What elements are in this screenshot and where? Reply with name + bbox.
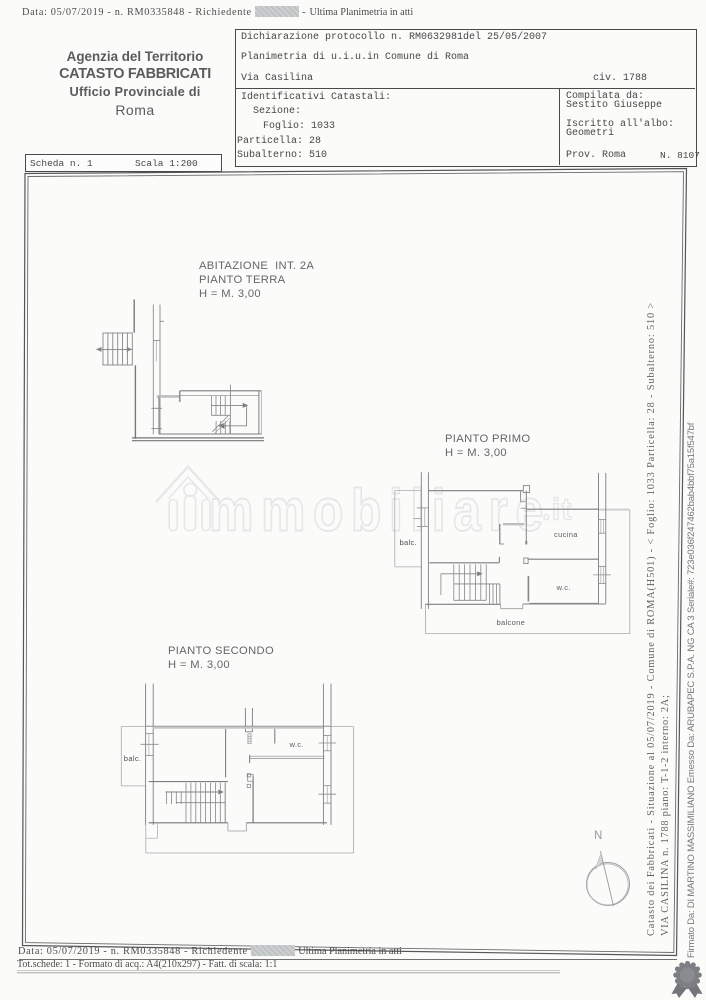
svg-text:N: N: [594, 830, 602, 842]
